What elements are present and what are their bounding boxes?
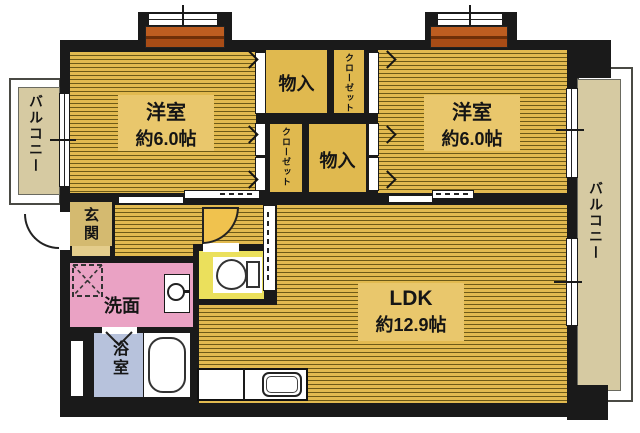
closet-upper-label: クローゼット (344, 53, 353, 113)
bathtub (148, 337, 186, 393)
bifold-door-left-2 (255, 123, 266, 156)
bathroom-label: 浴室 (110, 340, 126, 378)
window-bedroom-right-balcony (566, 88, 578, 178)
ldk-label: LDK 約12.9帖 (358, 283, 464, 341)
sliding-door-bedroom-left-a (118, 196, 184, 204)
bathroom-side-panel (70, 340, 84, 397)
window-bedroom-right-tick (556, 129, 584, 131)
window-sill-right (430, 26, 508, 48)
bifold-door-right-3 (368, 157, 379, 191)
sliding-door-hall-ldk (263, 205, 276, 291)
kitchen-counter-divider (243, 369, 245, 400)
sliding-door-bedroom-right-a (388, 195, 433, 203)
entrance-step (72, 246, 110, 256)
bedroom-right-name: 洋室 (452, 96, 492, 125)
bedroom-left-label: 洋室 約6.0帖 (118, 95, 214, 151)
toilet-tank-icon (246, 261, 260, 288)
floor-plan: バルコニー バルコニー (0, 0, 640, 433)
ldk-name: LDK (389, 287, 432, 311)
kitchen-sink-icon (262, 372, 302, 397)
toilet-bowl-icon (216, 259, 247, 290)
bifold-door-right-1 (368, 52, 379, 114)
bedroom-left-area: 約6.0帖 (135, 125, 196, 151)
wall-corner-bottom-right (567, 385, 608, 420)
washbasin-faucet-icon (184, 290, 189, 293)
balcony-left-label: バルコニー (29, 94, 43, 174)
storage-lower-label: 物入 (309, 147, 366, 173)
toilet-door-gap (203, 243, 239, 252)
balcony-right-label: バルコニー (589, 181, 603, 261)
washbasin-bowl-icon (167, 283, 185, 301)
kitchen-sink-inner (266, 376, 298, 393)
window-balcony-left-tick (50, 139, 76, 141)
bifold-door-left-3 (255, 157, 266, 191)
entrance-door-gap (60, 212, 70, 250)
wall-entrance-hall (112, 202, 115, 256)
washer-space-icon (71, 263, 104, 298)
entrance-label: 玄関 (83, 207, 98, 243)
sliding-door-bedroom-right-dashes (436, 193, 470, 195)
bifold-door-right-2 (368, 123, 379, 156)
entrance-door-arc-icon (24, 214, 59, 249)
closet-lower-label: クローゼット (281, 127, 290, 187)
storage-upper-label: 物入 (266, 70, 327, 96)
washroom-label: 洗面 (104, 292, 140, 318)
window-ldk-tick (554, 281, 582, 283)
wall-corner-top-right (567, 40, 611, 78)
ldk-area: 約12.9帖 (375, 311, 446, 337)
bedroom-right-area: 約6.0帖 (441, 125, 502, 151)
bedroom-left-name: 洋室 (146, 96, 186, 125)
sliding-door-hall-ldk-dashes (267, 212, 269, 282)
bedroom-right-label: 洋室 約6.0帖 (424, 95, 520, 151)
window-sill-left (145, 26, 225, 48)
sliding-door-bedroom-left-dashes (220, 193, 256, 195)
